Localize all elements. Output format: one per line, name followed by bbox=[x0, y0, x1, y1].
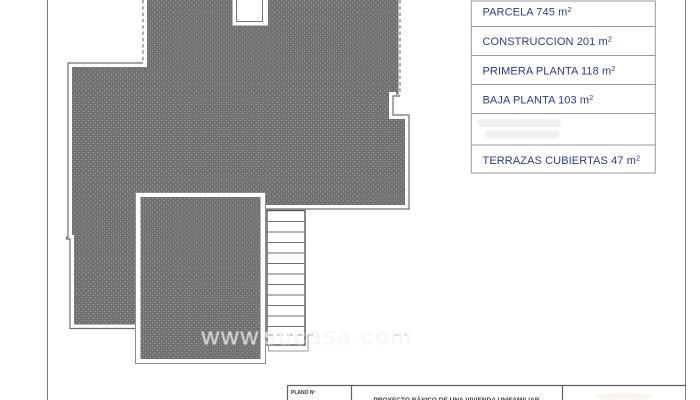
svg-text:www: www bbox=[201, 324, 260, 351]
svg-text:BAJA PLANTA 103 m2: BAJA PLANTA 103 m2 bbox=[483, 93, 594, 107]
svg-text:CONSTRUCCION 201 m2: CONSTRUCCION 201 m2 bbox=[483, 35, 613, 49]
svg-text:PARCELA 745 m2: PARCELA 745 m2 bbox=[483, 5, 572, 19]
svg-text:PLANO Nº: PLANO Nº bbox=[291, 390, 316, 396]
svg-text:PRIMERA PLANTA 118 m2: PRIMERA PLANTA 118 m2 bbox=[483, 64, 616, 78]
svg-text:sucasa.com: sucasa.com bbox=[264, 324, 413, 351]
svg-text:TERRAZAS CUBIERTAS 47 m2: TERRAZAS CUBIERTAS 47 m2 bbox=[483, 154, 641, 168]
